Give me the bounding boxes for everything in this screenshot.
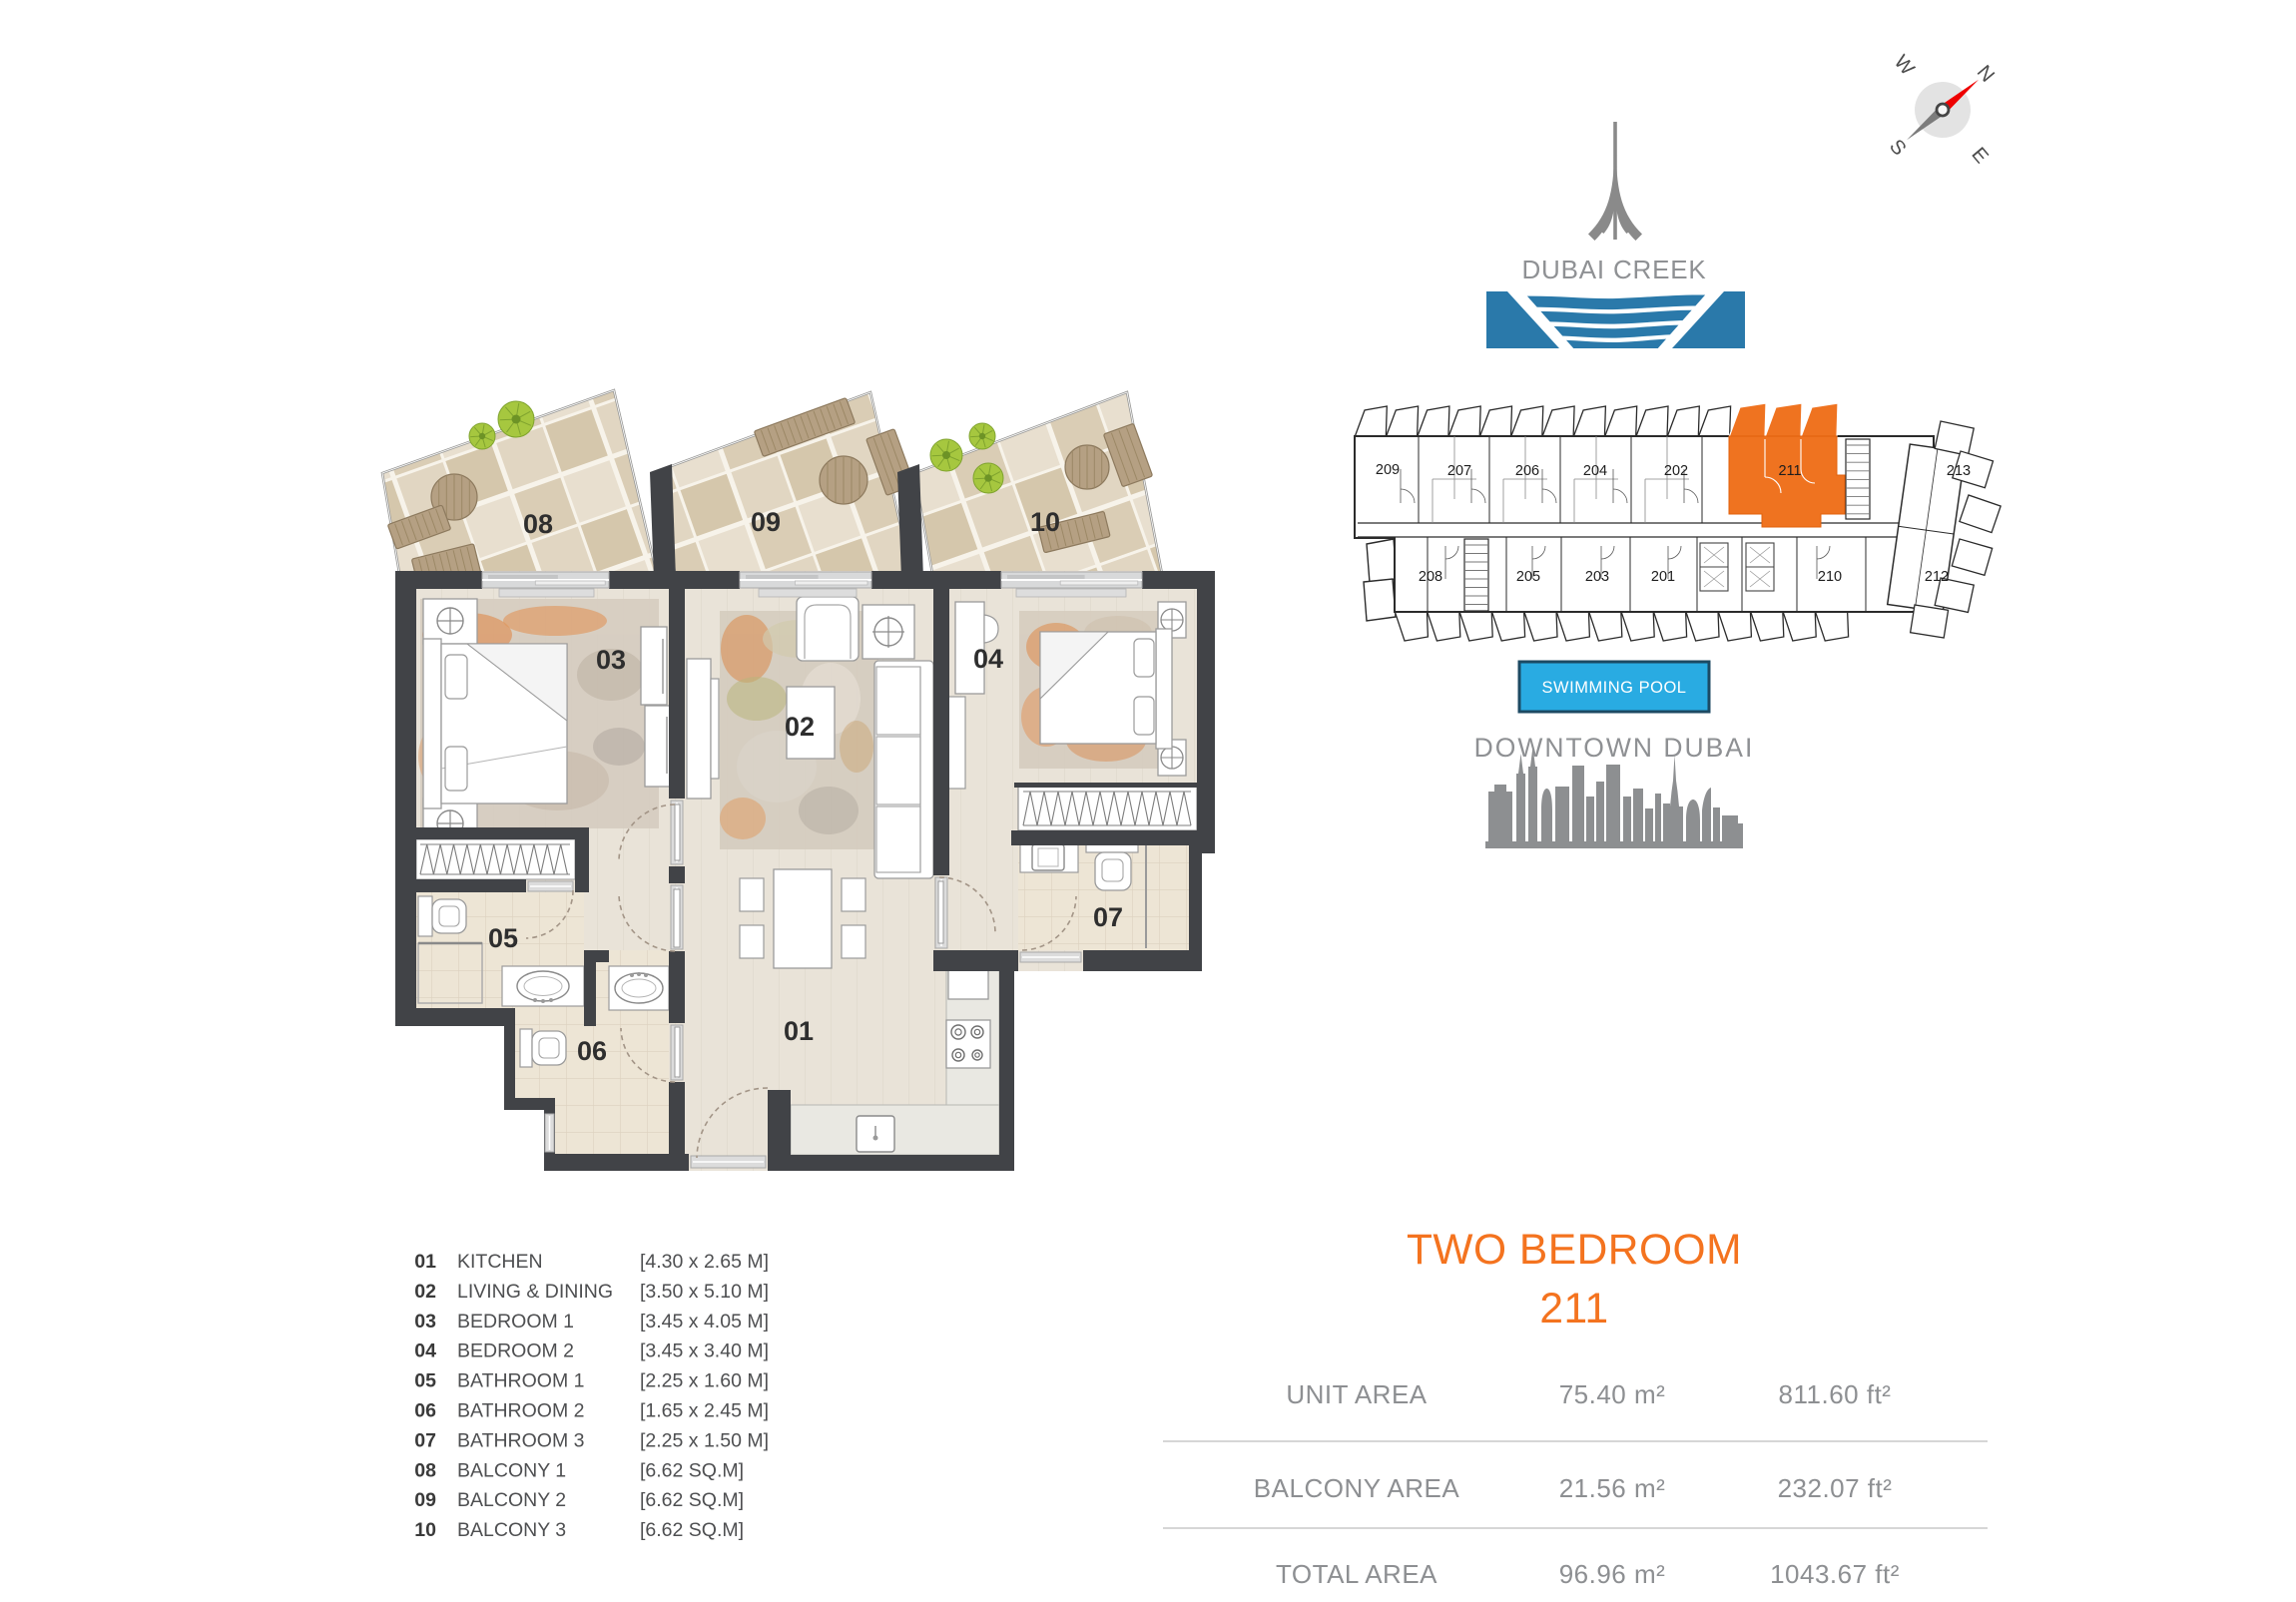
svg-text:[1.65 x 2.45 M]: [1.65 x 2.45 M] — [640, 1400, 769, 1422]
svg-text:DOWNTOWN DUBAI: DOWNTOWN DUBAI — [1474, 733, 1755, 763]
svg-text:BALCONY 2: BALCONY 2 — [457, 1489, 566, 1511]
svg-text:07: 07 — [414, 1429, 436, 1451]
svg-text:205: 205 — [1516, 569, 1540, 585]
svg-text:[4.30 x 2.65 M]: [4.30 x 2.65 M] — [640, 1251, 769, 1273]
svg-text:[6.62 SQ.M]: [6.62 SQ.M] — [640, 1459, 744, 1481]
svg-text:BATHROOM 2: BATHROOM 2 — [457, 1400, 584, 1422]
svg-text:04: 04 — [414, 1340, 436, 1362]
svg-text:209: 209 — [1376, 462, 1400, 478]
svg-text:[6.62 SQ.M]: [6.62 SQ.M] — [640, 1489, 744, 1511]
svg-text:07: 07 — [1093, 902, 1123, 932]
svg-text:207: 207 — [1447, 463, 1471, 479]
svg-text:[3.45 x 4.05 M]: [3.45 x 4.05 M] — [640, 1311, 769, 1333]
svg-text:206: 206 — [1515, 463, 1539, 479]
svg-text:BEDROOM 2: BEDROOM 2 — [457, 1340, 574, 1362]
svg-text:232.07 ft²: 232.07 ft² — [1778, 1473, 1893, 1503]
svg-text:75.40 m²: 75.40 m² — [1559, 1379, 1666, 1409]
svg-text:BEDROOM 1: BEDROOM 1 — [457, 1311, 574, 1333]
svg-text:[2.25 x 1.60 M]: [2.25 x 1.60 M] — [640, 1370, 769, 1392]
svg-text:211: 211 — [1778, 463, 1801, 479]
svg-text:212: 212 — [1925, 569, 1949, 585]
svg-text:KITCHEN: KITCHEN — [457, 1251, 543, 1273]
svg-text:208: 208 — [1419, 569, 1442, 585]
svg-text:01: 01 — [784, 1016, 814, 1046]
svg-text:06: 06 — [414, 1400, 436, 1422]
svg-text:08: 08 — [414, 1459, 436, 1481]
svg-text:811.60 ft²: 811.60 ft² — [1779, 1379, 1892, 1409]
svg-text:BATHROOM 1: BATHROOM 1 — [457, 1370, 584, 1392]
svg-text:08: 08 — [523, 509, 553, 539]
svg-text:204: 204 — [1583, 463, 1607, 479]
svg-text:05: 05 — [488, 923, 518, 953]
svg-text:03: 03 — [414, 1311, 436, 1333]
svg-text:201: 201 — [1651, 569, 1675, 585]
svg-text:BALCONY 1: BALCONY 1 — [457, 1459, 566, 1481]
svg-text:213: 213 — [1947, 463, 1971, 479]
svg-text:05: 05 — [414, 1370, 436, 1392]
svg-text:21.56 m²: 21.56 m² — [1559, 1473, 1666, 1503]
svg-text:02: 02 — [785, 712, 815, 742]
svg-text:210: 210 — [1818, 569, 1842, 585]
svg-text:[6.62 SQ.M]: [6.62 SQ.M] — [640, 1519, 744, 1541]
svg-text:203: 203 — [1585, 569, 1609, 585]
svg-text:10: 10 — [414, 1519, 436, 1541]
svg-text:TOTAL AREA: TOTAL AREA — [1276, 1559, 1437, 1589]
svg-text:1043.67 ft²: 1043.67 ft² — [1770, 1559, 1900, 1589]
svg-text:LIVING & DINING: LIVING & DINING — [457, 1281, 613, 1303]
svg-text:[2.25 x 1.50 M]: [2.25 x 1.50 M] — [640, 1429, 769, 1451]
svg-text:211: 211 — [1539, 1286, 1608, 1333]
svg-text:BALCONY AREA: BALCONY AREA — [1254, 1473, 1460, 1503]
svg-text:[3.50 x 5.10 M]: [3.50 x 5.10 M] — [640, 1281, 769, 1303]
svg-text:10: 10 — [1030, 507, 1060, 537]
svg-text:09: 09 — [414, 1489, 436, 1511]
svg-text:04: 04 — [973, 644, 1003, 674]
svg-text:03: 03 — [596, 645, 626, 675]
svg-text:BATHROOM 3: BATHROOM 3 — [457, 1429, 584, 1451]
svg-text:202: 202 — [1664, 463, 1688, 479]
svg-text:[3.45 x 3.40 M]: [3.45 x 3.40 M] — [640, 1340, 769, 1362]
svg-text:02: 02 — [414, 1281, 436, 1303]
svg-text:09: 09 — [751, 507, 781, 537]
svg-text:06: 06 — [577, 1036, 607, 1066]
svg-text:SWIMMING POOL: SWIMMING POOL — [1542, 679, 1687, 697]
svg-text:01: 01 — [414, 1251, 436, 1273]
svg-text:TWO BEDROOM: TWO BEDROOM — [1407, 1227, 1742, 1274]
svg-text:96.96 m²: 96.96 m² — [1559, 1559, 1666, 1589]
svg-text:BALCONY 3: BALCONY 3 — [457, 1519, 566, 1541]
svg-text:UNIT AREA: UNIT AREA — [1286, 1379, 1427, 1409]
svg-text:DUBAI CREEK: DUBAI CREEK — [1521, 255, 1706, 284]
